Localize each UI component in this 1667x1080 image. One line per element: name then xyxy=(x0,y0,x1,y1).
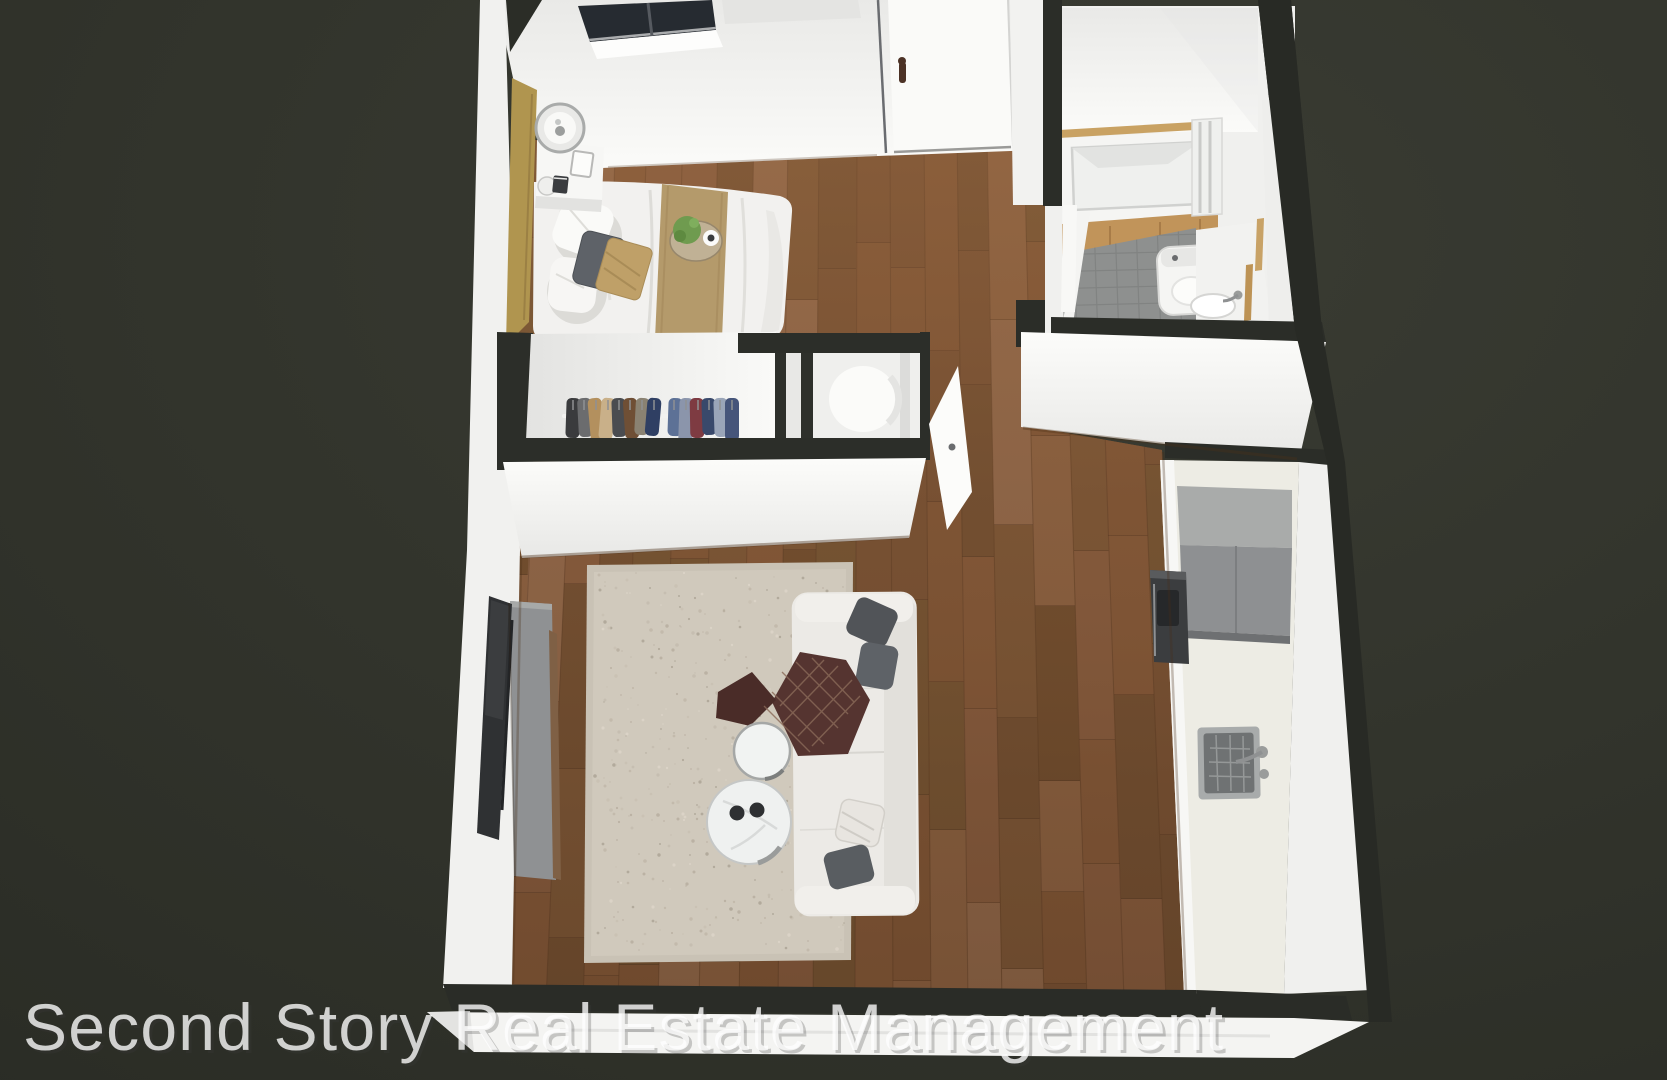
svg-text:Second Story Real Estate Manag: Second Story Real Estate Management xyxy=(23,990,1224,1064)
